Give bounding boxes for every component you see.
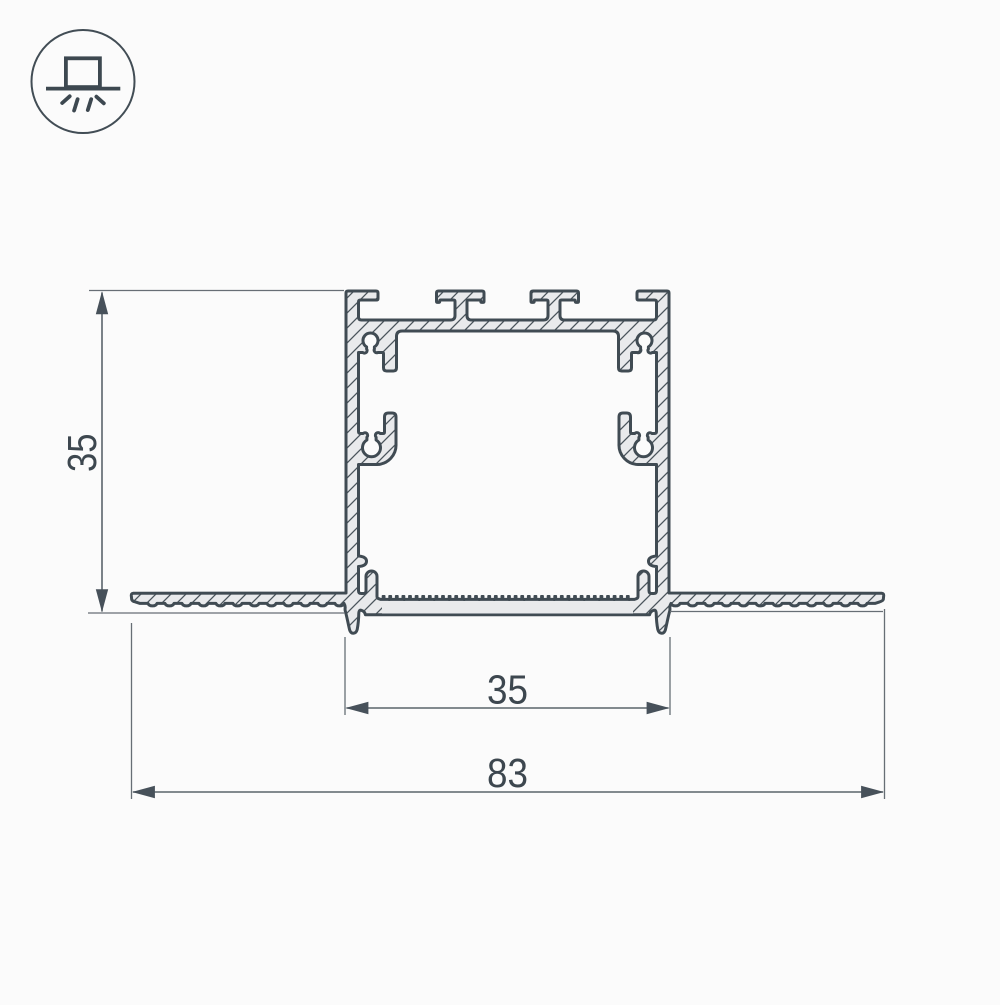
svg-text:83: 83 bbox=[487, 750, 528, 796]
svg-text:35: 35 bbox=[487, 667, 528, 713]
svg-text:35: 35 bbox=[59, 434, 105, 473]
